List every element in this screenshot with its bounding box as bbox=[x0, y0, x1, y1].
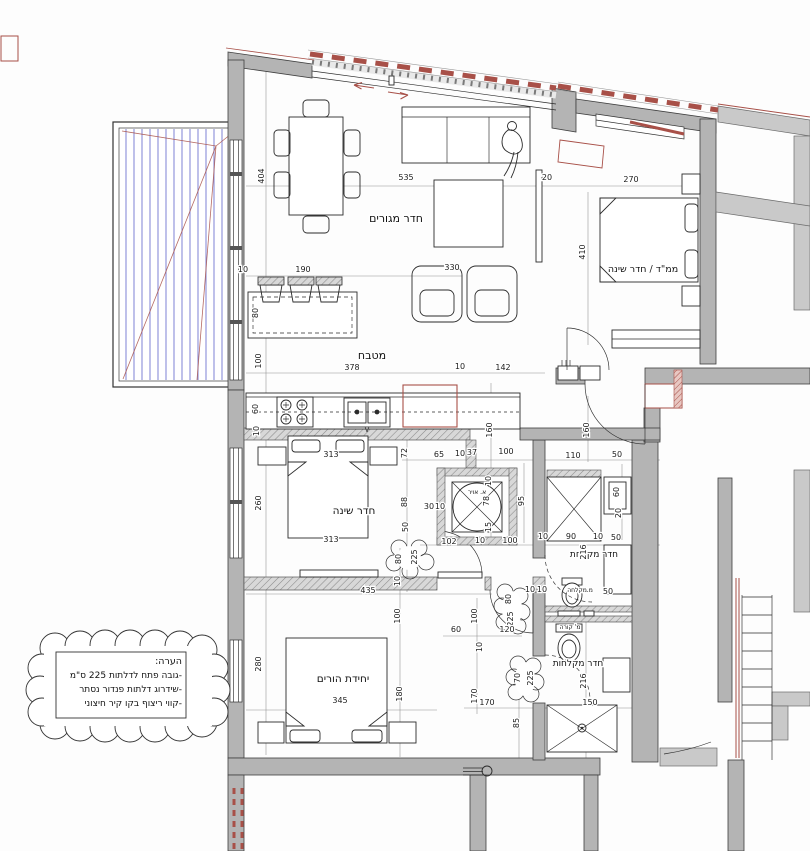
dimension-label: 435 bbox=[360, 586, 375, 595]
dimension-label: 50 bbox=[401, 522, 410, 532]
dimension-label: 10 bbox=[238, 265, 248, 274]
dimension-label: 313 bbox=[323, 535, 338, 544]
dimension-label: 72 bbox=[400, 448, 409, 458]
parents-window[interactable] bbox=[230, 640, 242, 702]
dimension-label: 260 bbox=[254, 495, 263, 510]
dimension-label: 10 bbox=[252, 426, 261, 436]
label-beam: מ' קורה bbox=[560, 624, 581, 631]
dimension-label: 225 bbox=[410, 549, 419, 564]
dimension-label: 404 bbox=[257, 168, 266, 183]
room-label-safe-room-bedroom: ממ"ד / חדר שינה bbox=[608, 264, 678, 275]
dimension-label: 216 bbox=[579, 673, 588, 688]
dimension-label: 410 bbox=[578, 244, 587, 259]
dimension-label: 378 bbox=[344, 363, 359, 372]
double-bed bbox=[286, 638, 387, 743]
dimension-label: 80 bbox=[504, 594, 513, 604]
shower-stall bbox=[547, 470, 601, 541]
shower-stall bbox=[547, 705, 617, 752]
dimension-label: 180 bbox=[395, 686, 404, 701]
dimension-label: 15 bbox=[484, 522, 493, 532]
dimension-label: 80 bbox=[251, 308, 260, 318]
armchair bbox=[412, 266, 462, 322]
dimension-label: 280 bbox=[254, 656, 263, 671]
dimension-label: 10 bbox=[484, 476, 493, 486]
floor-plan-page: הערה: -גובה פתח לדלתות 225 ס"מ -שידרוג ד… bbox=[0, 0, 810, 851]
safe-room-ac bbox=[558, 140, 604, 168]
dimension-label: 10 bbox=[455, 449, 465, 458]
dimension-label: 170 bbox=[479, 698, 494, 707]
dimension-label: 110 bbox=[565, 451, 580, 460]
dimension-label: 100 bbox=[498, 447, 513, 456]
dimension-label: 60 bbox=[251, 404, 260, 414]
dimension-label: 10 bbox=[455, 362, 465, 371]
dimension-label: 160 bbox=[582, 422, 591, 437]
dimension-label: 225 bbox=[526, 670, 535, 685]
floor-plan-svg: הערה: -גובה פתח לדלתות 225 ס"מ -שידרוג ד… bbox=[0, 0, 810, 851]
dimension-label: 10 bbox=[538, 532, 548, 541]
dimension-label: 170 bbox=[470, 688, 479, 703]
dimension-label: 216 bbox=[579, 544, 588, 559]
dimension-label: 150 bbox=[582, 698, 597, 707]
dimension-label: 100 bbox=[393, 608, 402, 623]
room-label-living-room: חדר מגורים bbox=[369, 212, 423, 225]
room-label-kitchen: מטבח bbox=[358, 349, 386, 362]
note-line: -שידרוג דלתות פנדור נסתר bbox=[79, 685, 182, 695]
dimension-label: 160 bbox=[485, 422, 494, 437]
coffee-table bbox=[434, 180, 503, 247]
nightstand bbox=[682, 286, 700, 306]
room-label-parents-unit: יחידת הורים bbox=[317, 673, 370, 685]
label-shower-niche: מ.מקלחה bbox=[567, 587, 593, 594]
dimension-label: 10 bbox=[393, 576, 402, 586]
dimension-label: 10 bbox=[525, 585, 535, 594]
dimension-label: 50 bbox=[611, 533, 621, 542]
dimension-label: 20 bbox=[614, 508, 623, 518]
dimension-label: 100 bbox=[502, 536, 517, 545]
dimension-label: 90 bbox=[566, 532, 576, 541]
note-line: -קווי ריצוף בקו קיר חיצוני bbox=[85, 699, 182, 709]
dimension-label: 85 bbox=[512, 718, 521, 728]
kitchen-island bbox=[248, 292, 357, 338]
dimension-label: 330 bbox=[444, 263, 459, 272]
dimension-label: 30 bbox=[424, 502, 434, 511]
dimension-label: 80 bbox=[394, 554, 403, 564]
dimension-label: 88 bbox=[400, 497, 409, 507]
bathroom-sink bbox=[603, 658, 630, 692]
label-air-shaft: א. אויר bbox=[468, 489, 486, 496]
dimension-label: 102 bbox=[441, 537, 456, 546]
closet bbox=[612, 330, 700, 348]
dimension-label: 100 bbox=[470, 608, 479, 623]
room-label-bedroom: חדר שינה bbox=[333, 505, 376, 517]
dimension-label: 20 bbox=[542, 173, 552, 182]
dimension-label: 37 bbox=[467, 448, 477, 457]
room-label-shower-room: חדר מקלחת bbox=[570, 550, 618, 560]
nightstand bbox=[258, 447, 286, 465]
nightstand bbox=[370, 447, 397, 465]
ac-unit bbox=[1, 36, 18, 61]
dimension-label: 50 bbox=[603, 587, 613, 596]
tv-cabinet bbox=[536, 170, 542, 262]
note-cloud: הערה: -גובה פתח לדלתות 225 ס"מ -שידרוג ד… bbox=[26, 630, 230, 742]
dimension-label: 50 bbox=[612, 450, 622, 459]
nightstand bbox=[682, 174, 700, 194]
dimension-label: 100 bbox=[254, 353, 263, 368]
dimension-label: 10 bbox=[435, 502, 445, 511]
dimension-label: 95 bbox=[517, 496, 526, 506]
room-label-shower-room-2: חדר מקלחות bbox=[553, 659, 604, 669]
dimension-label: 535 bbox=[398, 173, 413, 182]
dimension-label: 120 bbox=[499, 625, 514, 634]
dining-table bbox=[289, 117, 343, 215]
dresser bbox=[300, 570, 378, 577]
nightstand bbox=[389, 722, 416, 743]
dimension-label: 60 bbox=[451, 625, 461, 634]
dimension-label: 142 bbox=[495, 363, 510, 372]
stairs[interactable] bbox=[736, 578, 772, 760]
note-title: הערה: bbox=[155, 656, 182, 667]
armchair bbox=[467, 266, 517, 322]
dimension-label: 10 bbox=[593, 532, 603, 541]
sofa bbox=[402, 107, 530, 163]
dimension-label: 190 bbox=[295, 265, 310, 274]
dimension-label: 10 bbox=[475, 536, 485, 545]
dimension-label: 10 bbox=[537, 585, 547, 594]
nightstand bbox=[258, 722, 284, 743]
balcony-deck bbox=[113, 122, 237, 387]
dimension-label: 10 bbox=[475, 642, 484, 652]
balcony-window[interactable] bbox=[230, 140, 242, 380]
door-height-cloud bbox=[506, 656, 544, 702]
dimension-label: 345 bbox=[332, 696, 347, 705]
dimension-label: 270 bbox=[623, 175, 638, 184]
safe-room-furniture bbox=[558, 174, 700, 380]
dimension-label: 70 bbox=[513, 673, 522, 683]
bedroom-window[interactable] bbox=[230, 448, 242, 558]
note-line: -גובה פתח לדלתות 225 ס"מ bbox=[70, 671, 182, 681]
sliding-glass-door[interactable] bbox=[312, 62, 556, 110]
dimension-label: 60 bbox=[612, 487, 621, 497]
dimension-label: 65 bbox=[434, 450, 444, 459]
dimension-label: 78 bbox=[482, 496, 491, 506]
dimension-label: 313 bbox=[323, 450, 338, 459]
living-room-furniture bbox=[274, 100, 542, 322]
